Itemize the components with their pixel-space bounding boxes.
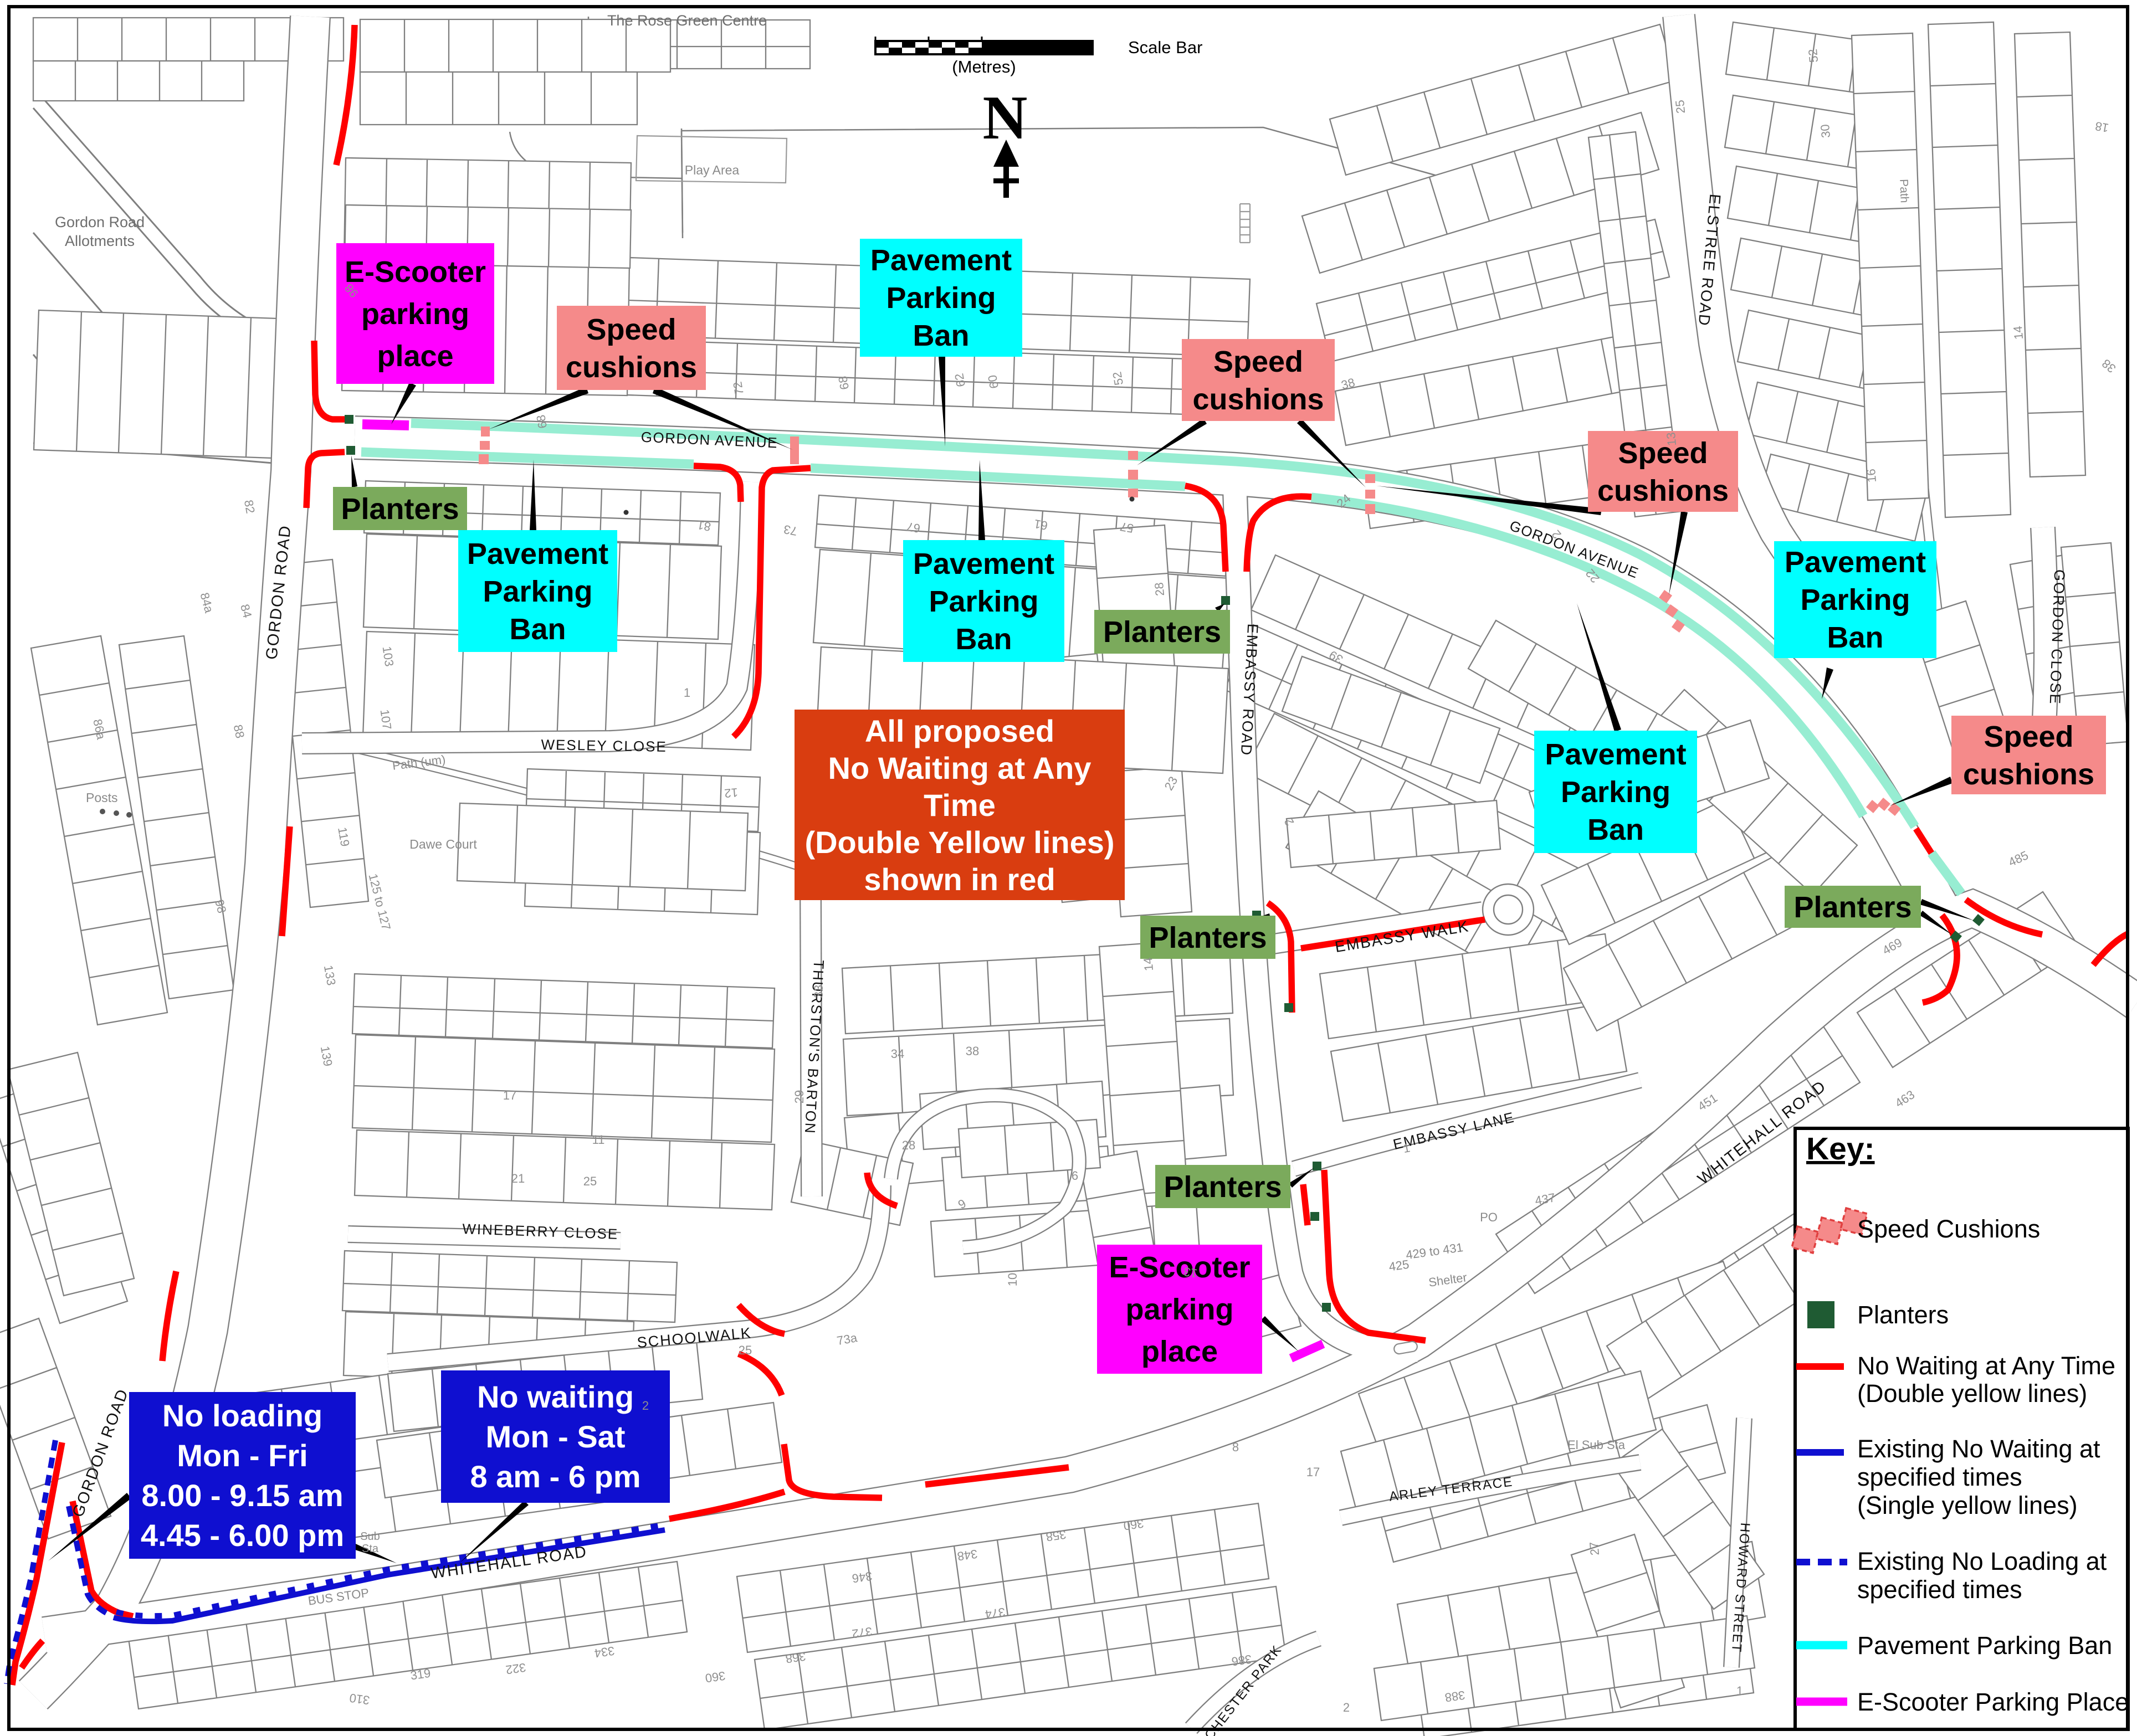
svg-text:Play Area: Play Area (685, 163, 740, 177)
svg-text:(Single yellow lines): (Single yellow lines) (1857, 1491, 2078, 1519)
svg-text:Planters: Planters (1149, 921, 1267, 954)
svg-text:2: 2 (642, 1399, 649, 1413)
svg-text:Pavement: Pavement (870, 244, 1012, 277)
svg-text:346: 346 (851, 1569, 873, 1585)
svg-text:Ban: Ban (509, 613, 566, 646)
svg-text:Ban: Ban (1587, 813, 1644, 846)
svg-text:82: 82 (242, 499, 258, 514)
svg-text:322: 322 (505, 1660, 527, 1677)
svg-text:88: 88 (231, 723, 248, 739)
svg-text:Existing No Waiting at: Existing No Waiting at (1857, 1435, 2100, 1463)
svg-text:14: 14 (1141, 957, 1156, 972)
svg-text:12: 12 (724, 785, 739, 800)
svg-text:17: 17 (503, 1088, 516, 1102)
svg-text:Speed: Speed (1618, 436, 1708, 470)
svg-text:30: 30 (1818, 124, 1833, 138)
svg-text:Pavement: Pavement (467, 537, 608, 571)
svg-text:360: 360 (704, 1668, 726, 1685)
svg-text:372: 372 (851, 1624, 873, 1641)
svg-text:Pavement: Pavement (1545, 738, 1686, 771)
svg-text:Sta: Sta (362, 1543, 379, 1555)
svg-text:Posts: Posts (86, 790, 118, 805)
svg-text:29: 29 (792, 1090, 806, 1103)
svg-text:17: 17 (1306, 1465, 1320, 1479)
svg-text:52: 52 (1110, 371, 1126, 386)
svg-text:73: 73 (782, 522, 798, 538)
svg-text:Path: Path (1897, 179, 1910, 203)
svg-text:Ban: Ban (1827, 621, 1883, 654)
svg-text:(Double Yellow lines): (Double Yellow lines) (804, 825, 1114, 860)
svg-text:Pavement: Pavement (1785, 546, 1926, 579)
svg-text:All proposed: All proposed (865, 713, 1054, 748)
svg-text:11: 11 (592, 1133, 605, 1147)
svg-text:Speed Cushions: Speed Cushions (1857, 1215, 2040, 1243)
svg-text:6: 6 (1072, 1169, 1078, 1183)
svg-text:Dawe Court: Dawe Court (409, 837, 477, 851)
svg-text:Parking: Parking (886, 281, 996, 315)
svg-text:Sub: Sub (360, 1530, 380, 1543)
svg-text:No Waiting at Any: No Waiting at Any (828, 751, 1091, 785)
svg-text:WESLEY CLOSE: WESLEY CLOSE (541, 736, 667, 755)
svg-text:4.45 - 6.00 pm: 4.45 - 6.00 pm (141, 1518, 344, 1553)
svg-text:E-Scooter: E-Scooter (1109, 1251, 1250, 1284)
svg-text:cushions: cushions (1963, 758, 2094, 791)
svg-text:Ban: Ban (955, 623, 1012, 656)
svg-text:parking: parking (361, 297, 469, 331)
svg-text:72: 72 (730, 381, 746, 396)
svg-text:specified times: specified times (1857, 1575, 2022, 1604)
svg-text:Ban: Ban (913, 319, 969, 352)
svg-text:13: 13 (1664, 432, 1679, 446)
svg-text:Key:: Key: (1806, 1131, 1875, 1167)
svg-text:Planters: Planters (1793, 891, 1911, 924)
svg-text:67: 67 (905, 520, 921, 536)
svg-text:Parking: Parking (929, 585, 1038, 618)
svg-text:Speed: Speed (1213, 345, 1303, 378)
svg-text:348: 348 (956, 1547, 978, 1563)
svg-text:68: 68 (836, 375, 852, 391)
svg-text:25: 25 (739, 1343, 752, 1357)
svg-text:310: 310 (349, 1691, 371, 1707)
svg-text:358: 358 (1045, 1527, 1067, 1544)
svg-text:103: 103 (380, 645, 396, 667)
svg-text:Parking: Parking (1561, 775, 1670, 809)
svg-text:334: 334 (593, 1643, 616, 1660)
svg-text:cushions: cushions (566, 351, 697, 384)
svg-text:place: place (1141, 1335, 1218, 1368)
svg-text:360: 360 (1123, 1516, 1145, 1533)
svg-text:specified times: specified times (1857, 1463, 2022, 1491)
svg-text:57: 57 (1119, 520, 1134, 536)
svg-text:368: 368 (785, 1649, 807, 1666)
svg-text:107: 107 (377, 708, 394, 731)
svg-text:374: 374 (984, 1605, 1006, 1621)
svg-text:E-Scooter Parking Place: E-Scooter Parking Place (1857, 1688, 2129, 1716)
svg-text:81: 81 (696, 518, 711, 534)
svg-text:16: 16 (1864, 468, 1879, 483)
svg-text:52: 52 (1806, 48, 1821, 63)
svg-text:Parking: Parking (483, 575, 592, 608)
svg-text:Parking: Parking (1800, 583, 1910, 617)
svg-text:388: 388 (1444, 1688, 1466, 1704)
svg-text:Speed: Speed (1984, 720, 2073, 753)
svg-text:Planters: Planters (341, 492, 459, 526)
svg-text:E-Scooter: E-Scooter (345, 255, 486, 289)
svg-text:Pavement Parking Ban: Pavement Parking Ban (1857, 1631, 2112, 1660)
svg-text:Gordon Road: Gordon Road (55, 214, 145, 230)
svg-text:El Sub Sta: El Sub Sta (1567, 1438, 1626, 1452)
svg-text:Allotments: Allotments (65, 233, 135, 249)
svg-text:No Waiting at Any Time: No Waiting at Any Time (1857, 1352, 2115, 1380)
svg-text:cushions: cushions (1192, 383, 1324, 416)
svg-text:Scale Bar: Scale Bar (1128, 38, 1202, 57)
svg-text:Mon - Sat: Mon - Sat (486, 1419, 626, 1454)
svg-text:1: 1 (684, 686, 690, 700)
svg-text:319: 319 (409, 1666, 432, 1683)
svg-text:shown in red: shown in red (864, 862, 1055, 897)
svg-text:Speed: Speed (586, 313, 676, 346)
svg-text:No waiting: No waiting (477, 1379, 634, 1414)
svg-text:425: 425 (1388, 1257, 1410, 1274)
svg-text:18: 18 (2094, 119, 2109, 135)
svg-text:8: 8 (1232, 1440, 1239, 1454)
svg-text:33: 33 (812, 985, 826, 998)
svg-text:Planters: Planters (1164, 1170, 1282, 1204)
svg-text:(Metres): (Metres) (952, 57, 1016, 76)
svg-text:62: 62 (952, 372, 968, 388)
svg-text:61: 61 (1033, 517, 1048, 533)
svg-text:25: 25 (1673, 99, 1688, 114)
svg-text:PO: PO (1480, 1210, 1498, 1224)
svg-text:28: 28 (902, 1138, 915, 1152)
svg-text:The Rose Green Centre: The Rose Green Centre (607, 12, 767, 29)
svg-text:60: 60 (985, 374, 1001, 389)
svg-text:Time: Time (924, 788, 996, 823)
svg-text:1: 1 (1736, 1684, 1743, 1698)
svg-text:21: 21 (511, 1172, 525, 1185)
svg-text:34: 34 (891, 1047, 904, 1061)
svg-text:2: 2 (1343, 1701, 1350, 1714)
svg-text:28: 28 (1152, 582, 1167, 597)
svg-text:38: 38 (966, 1044, 979, 1058)
svg-text:(Double yellow lines): (Double yellow lines) (1857, 1379, 2087, 1408)
svg-text:cushions: cushions (1597, 474, 1729, 507)
svg-text:386: 386 (1231, 1652, 1253, 1668)
svg-text:10: 10 (1006, 1273, 1019, 1286)
svg-text:8 am - 6 pm: 8 am - 6 pm (470, 1459, 640, 1494)
svg-text:25: 25 (583, 1174, 597, 1188)
svg-text:Planters: Planters (1103, 615, 1221, 649)
svg-text:Existing No Loading at: Existing No Loading at (1857, 1547, 2107, 1575)
svg-text:Pavement: Pavement (913, 547, 1054, 581)
svg-text:27: 27 (1587, 1541, 1602, 1556)
svg-text:13: 13 (1182, 1265, 1198, 1281)
svg-text:No loading: No loading (162, 1398, 322, 1433)
svg-text:place: place (377, 340, 453, 373)
svg-text:parking: parking (1125, 1293, 1233, 1326)
svg-text:Planters: Planters (1857, 1301, 1949, 1329)
svg-text:68: 68 (534, 414, 550, 429)
svg-text:14: 14 (2011, 325, 2026, 340)
svg-text:Mon - Fri: Mon - Fri (177, 1438, 308, 1473)
svg-text:8.00 - 9.15 am: 8.00 - 9.15 am (141, 1478, 343, 1513)
